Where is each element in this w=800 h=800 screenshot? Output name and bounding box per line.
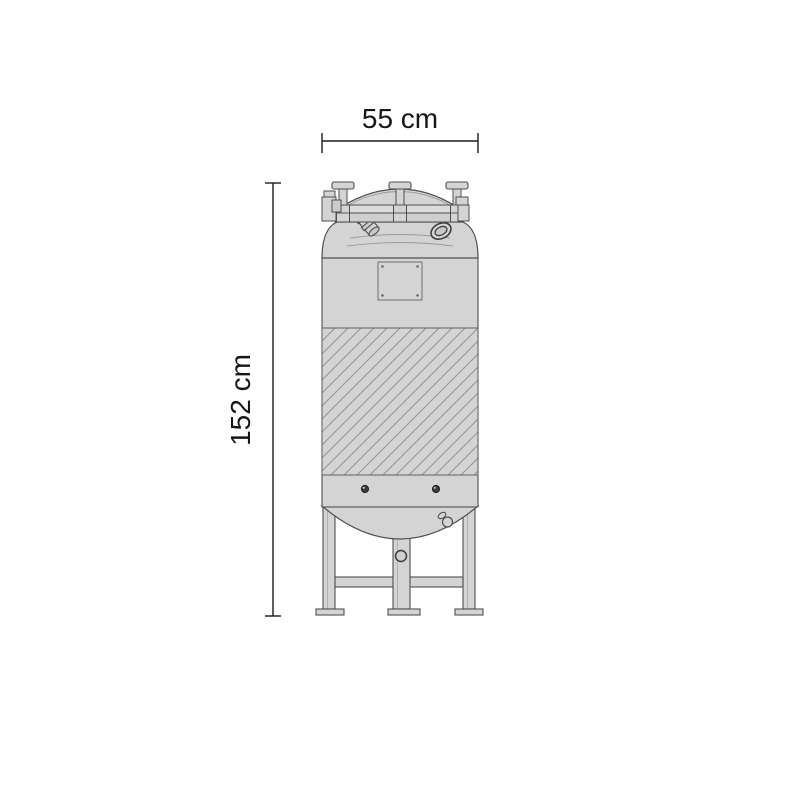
height-dimension-label: 152 cm (225, 354, 256, 446)
nameplate-screw (381, 265, 383, 267)
nameplate (378, 262, 422, 300)
bolt-port-left (361, 485, 368, 492)
nameplate-screw (381, 294, 383, 296)
hatch-band (322, 328, 478, 475)
lid-bracket-right (456, 197, 469, 221)
left-foot-pad (316, 609, 344, 615)
pipe-hole (396, 551, 407, 562)
right-leg (463, 505, 475, 609)
tank-shoulder (322, 222, 478, 258)
nameplate-screw (416, 294, 418, 296)
tank-lid (322, 182, 469, 222)
bolt-port-right (432, 485, 439, 492)
bolt-highlight (434, 487, 436, 489)
left-leg (323, 505, 335, 609)
tank-diagram: 55 cm 152 cm (0, 0, 800, 800)
width-dimension: 55 cm (322, 103, 478, 153)
bolt-highlight (363, 487, 365, 489)
nameplate-screw (416, 265, 418, 267)
bottom-dome (322, 506, 478, 539)
height-dimension: 152 cm (225, 183, 281, 616)
right-foot-pad (455, 609, 483, 615)
center-foot-pad (388, 609, 420, 615)
width-dimension-label: 55 cm (362, 103, 438, 134)
drawing-canvas: 55 cm 152 cm (0, 0, 800, 800)
